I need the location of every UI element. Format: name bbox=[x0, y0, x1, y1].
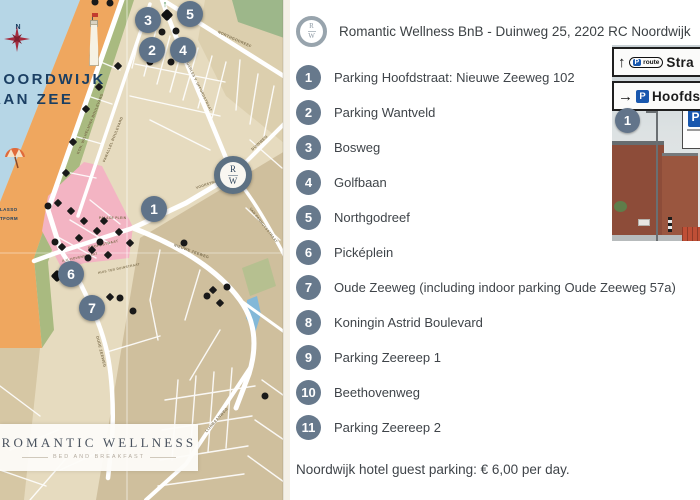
map-poi-icon bbox=[92, 0, 99, 6]
logo-letter-w: W bbox=[308, 33, 315, 40]
street-label: NORTHGODREEF bbox=[217, 30, 252, 48]
right-arrow-icon: → bbox=[618, 88, 633, 105]
legend-item-9: 9Parking Zeereep 1 bbox=[296, 340, 700, 375]
legend-item-8: 8Koningin Astrid Boulevard bbox=[296, 305, 700, 340]
map-poi-icon bbox=[161, 9, 174, 22]
direction-sign-hoofdstraat: → P Hoofdst bbox=[612, 81, 700, 111]
map-marker-3: 3 bbox=[135, 7, 161, 33]
map-poi-icon bbox=[104, 251, 112, 259]
lamppost-arm bbox=[646, 111, 658, 113]
sign2-destination: Hoofdst bbox=[652, 89, 700, 104]
p-route-badge: P route bbox=[629, 57, 664, 68]
page-title: Romantic Wellness BnB - Duinweg 25, 2202… bbox=[339, 24, 691, 39]
photo-bench bbox=[638, 219, 650, 226]
map-label-fragment: LASSO bbox=[0, 207, 18, 212]
street-photo: P ↑ P route Stra → P Hoofdst 1 bbox=[612, 45, 700, 241]
legend-number-badge: 3 bbox=[296, 135, 321, 160]
legend-item-label: Bosweg bbox=[334, 140, 380, 155]
legend-number-badge: 10 bbox=[296, 380, 321, 405]
map-poi-icon bbox=[114, 62, 122, 70]
legend-number-badge: 5 bbox=[296, 205, 321, 230]
photo-bush bbox=[614, 201, 627, 212]
legend-number-badge: 1 bbox=[296, 65, 321, 90]
parking-map-flyer: KON. WILHELMINA BOULEVARDPARALLEL BOULEV… bbox=[0, 0, 700, 500]
map-poi-icon bbox=[67, 207, 75, 215]
legend-item-label: Oude Zeeweg (including indoor parking Ou… bbox=[334, 280, 676, 295]
parking-sign-smalltext bbox=[687, 129, 700, 131]
legend-item-label: Beethovenweg bbox=[334, 385, 420, 400]
legend-item-label: Koningin Astrid Boulevard bbox=[334, 315, 483, 330]
brand-subtitle: BED AND BREAKFAST bbox=[22, 454, 176, 460]
street-label: OUDE ZEEWEG bbox=[95, 336, 107, 368]
beach-umbrella-icon bbox=[2, 144, 28, 170]
map-poi-icon bbox=[93, 227, 101, 235]
parking-p-icon: P bbox=[636, 90, 649, 103]
map-poi-icon bbox=[80, 217, 88, 225]
legend-item-label: Parking Hoofdstraat: Nieuwe Zeeweg 102 bbox=[334, 70, 575, 85]
map-poi-icon bbox=[262, 393, 269, 400]
legend-number-badge: 9 bbox=[296, 345, 321, 370]
brand-title: ROMANTIC WELLNESS bbox=[2, 435, 197, 451]
brand-box: ROMANTIC WELLNESS BED AND BREAKFAST bbox=[0, 424, 198, 471]
lighthouse-icon bbox=[85, 16, 101, 66]
map-poi-icon bbox=[52, 239, 59, 246]
map-marker-4: 4 bbox=[170, 37, 196, 63]
rw-marker-r: R bbox=[230, 165, 236, 174]
parking-fee-note: Noordwijk hotel guest parking: € 6,00 pe… bbox=[296, 462, 570, 477]
map-marker-7: 7 bbox=[79, 295, 105, 321]
p-route-p-icon: P bbox=[633, 59, 642, 66]
map-poi-icon bbox=[54, 199, 62, 207]
striped-bollard-icon bbox=[668, 217, 672, 232]
map-panel: KON. WILHELMINA BOULEVARDPARALLEL BOULEV… bbox=[0, 0, 290, 500]
logo-letter-r: R bbox=[309, 23, 314, 30]
legend-item-10: 10Beethovenweg bbox=[296, 375, 700, 410]
map-poi-icon bbox=[75, 234, 83, 242]
street-label: PARALLEL BOULEVARD bbox=[102, 116, 124, 163]
map-poi-icon bbox=[224, 284, 231, 291]
map-marker-1: 1 bbox=[141, 196, 167, 222]
legend-number-badge: 7 bbox=[296, 275, 321, 300]
legend-item-label: Parking Wantveld bbox=[334, 105, 435, 120]
map-poi-icon bbox=[173, 28, 180, 35]
street-label: VAN PANHUYSSTRAAT bbox=[248, 207, 278, 244]
legend-item-label: Northgodreef bbox=[334, 210, 410, 225]
legend-item-label: Parking Zeereep 1 bbox=[334, 350, 441, 365]
legend-number-badge: 11 bbox=[296, 415, 321, 440]
compass-star bbox=[2, 24, 32, 54]
brand-subtitle-text: BED AND BREAKFAST bbox=[53, 454, 145, 460]
street-label: QUARLES V. UFFORDSTRAAT bbox=[184, 59, 213, 112]
street-label: NIEUWE ZEEWEG bbox=[173, 243, 209, 259]
map-poi-icon bbox=[216, 299, 224, 307]
place-name-line1: NOORDWIJK bbox=[0, 70, 106, 90]
direction-sign-p-route: ↑ P route Stra bbox=[612, 47, 700, 77]
map-poi-icon bbox=[159, 29, 166, 36]
street-label: LIJNBAANWEG bbox=[205, 407, 229, 434]
place-name: NOORDWIJK AAN ZEE bbox=[0, 70, 106, 110]
map-poi-icon bbox=[115, 228, 123, 236]
legend-item-7: 7Oude Zeeweg (including indoor parking O… bbox=[296, 270, 700, 305]
map-poi-icon bbox=[117, 295, 124, 302]
map-marker-rw-bnb: R W bbox=[214, 156, 252, 194]
map-poi-icon bbox=[107, 0, 114, 7]
street-label: DUINWEG bbox=[251, 135, 269, 152]
map-poi-icon bbox=[126, 239, 134, 247]
map-poi-icon bbox=[85, 255, 92, 262]
up-arrow-icon: ↑ bbox=[618, 54, 626, 71]
lamppost-icon bbox=[656, 111, 658, 241]
map-poi-icon bbox=[106, 293, 114, 301]
brand-rule-right bbox=[150, 457, 176, 458]
map-marker-5: 5 bbox=[177, 1, 203, 27]
trail-arrow-icon: ↑ bbox=[163, 0, 168, 9]
photo-red-fence bbox=[682, 227, 700, 241]
brand-rule-left bbox=[22, 457, 48, 458]
legend-header: R W Romantic Wellness BnB - Duinweg 25, … bbox=[296, 16, 691, 47]
map-poi-icon bbox=[209, 286, 217, 294]
map-poi-icon bbox=[204, 293, 211, 300]
map-poi-icon bbox=[130, 308, 137, 315]
street-label: HUIS TER DUINSTRAAT bbox=[98, 262, 141, 275]
map-poi-icon bbox=[69, 138, 77, 146]
legend-number-badge: 2 bbox=[296, 100, 321, 125]
map-poi-icon bbox=[97, 239, 104, 246]
rw-logo-icon: R W bbox=[296, 16, 327, 47]
photo-marker-1: 1 bbox=[615, 108, 640, 133]
map-poi-icon bbox=[58, 243, 66, 251]
compass-rose: N bbox=[2, 24, 34, 60]
p-route-text: route bbox=[643, 59, 659, 66]
rw-marker-w: W bbox=[229, 177, 238, 186]
map-marker-6: 6 bbox=[58, 261, 84, 287]
map-marker-2: 2 bbox=[139, 37, 165, 63]
legend-item-label: Golfbaan bbox=[334, 175, 387, 190]
legend-number-badge: 8 bbox=[296, 310, 321, 335]
legend-item-label: Picképlein bbox=[334, 245, 393, 260]
place-name-line2: AAN ZEE bbox=[0, 90, 106, 110]
legend-number-badge: 6 bbox=[296, 240, 321, 265]
legend-number-badge: 4 bbox=[296, 170, 321, 195]
map-poi-icon bbox=[62, 169, 70, 177]
legend-item-label: Parking Zeereep 2 bbox=[334, 420, 441, 435]
legend-item-11: 11Parking Zeereep 2 bbox=[296, 410, 700, 445]
map-poi-icon bbox=[181, 240, 188, 247]
map-poi-icon bbox=[45, 203, 52, 210]
sign1-destination: Stra bbox=[666, 55, 693, 70]
map-label-fragment: TFORM bbox=[0, 216, 18, 221]
